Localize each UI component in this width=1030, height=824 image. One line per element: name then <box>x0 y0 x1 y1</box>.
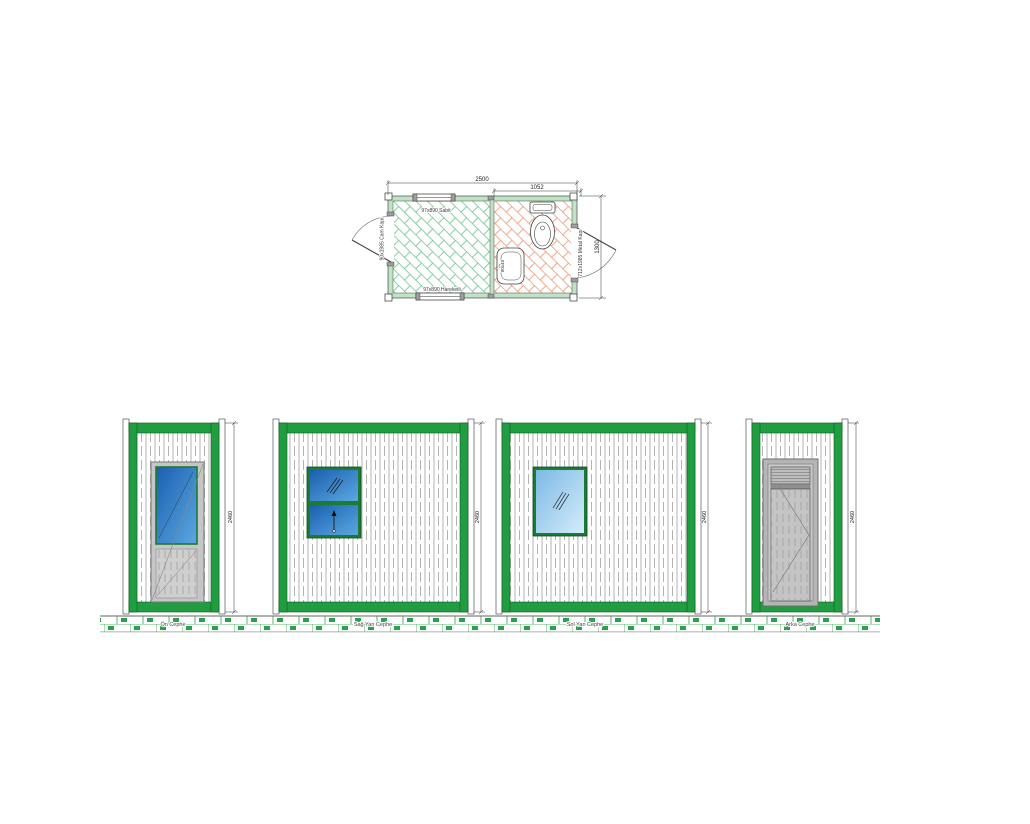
corner-post <box>496 419 502 614</box>
corner-post <box>842 419 848 614</box>
label-door-right: 712x1985 Metal Kapı <box>578 229 584 276</box>
elevation-caption: Ön Cephe <box>160 621 185 628</box>
dim-height-text: 2460 <box>228 511 234 523</box>
dim-total-text: 2500 <box>475 177 489 183</box>
toilet-icon <box>530 202 555 249</box>
entry-door <box>151 462 204 602</box>
label-window-top: 97x890 Sabit <box>421 208 451 214</box>
dim-side-text: 1300 <box>595 240 601 254</box>
cad-sheet: 97x890 Sabit 97x890 Hareketli 90x1985 Ca… <box>0 0 1030 824</box>
corner-post <box>273 419 279 614</box>
elevation-right-side: 2460 Sağ Yan Cephe <box>273 419 485 628</box>
floor-plan: 97x890 Sabit 97x890 Hareketli 90x1985 Ca… <box>352 177 616 301</box>
corner-post <box>468 419 474 614</box>
plan-window-bottom <box>416 293 464 300</box>
plan-room-floor <box>393 201 490 293</box>
corner-post <box>123 419 129 614</box>
dim-partial-text: 1052 <box>530 185 544 191</box>
technical-drawing: 97x890 Sabit 97x890 Hareketli 90x1985 Ca… <box>0 0 1030 824</box>
ground-strip <box>100 616 880 632</box>
elevation-left-side: 2460 Sol Yan Cephe <box>496 419 712 628</box>
corner-post <box>219 419 225 614</box>
corner-post <box>746 419 752 614</box>
window-upper-pane <box>310 470 358 501</box>
partition-post-bottom <box>488 294 494 298</box>
door-glass <box>156 467 197 544</box>
dim-height-text: 2460 <box>850 511 856 523</box>
elevation-caption: Sağ Yan Cephe <box>354 622 392 628</box>
dim-height-text: 2460 <box>475 511 481 523</box>
elevation-back: 2460 Arka Cephe <box>746 419 859 628</box>
plan-door-left <box>352 212 394 266</box>
two-pane-window <box>307 467 361 538</box>
partition-post-top <box>488 196 494 200</box>
label-window-bottom: 97x890 Hareketli <box>423 287 461 293</box>
plan-window-top <box>413 194 455 201</box>
corner-post <box>695 419 701 614</box>
elevation-caption: Sol Yan Cephe <box>567 622 604 628</box>
single-pane-window <box>533 467 587 536</box>
label-door-left: 90x1985 Cam Kapı <box>380 218 386 261</box>
dim-height-text: 2460 <box>702 511 708 523</box>
elevation-caption: Arka Cephe <box>785 622 814 628</box>
window-pane <box>536 470 584 533</box>
metal-door <box>763 459 818 606</box>
label-sink: 80x40 <box>500 259 505 272</box>
elevation-front: 2460 Ön Cephe <box>123 419 238 628</box>
